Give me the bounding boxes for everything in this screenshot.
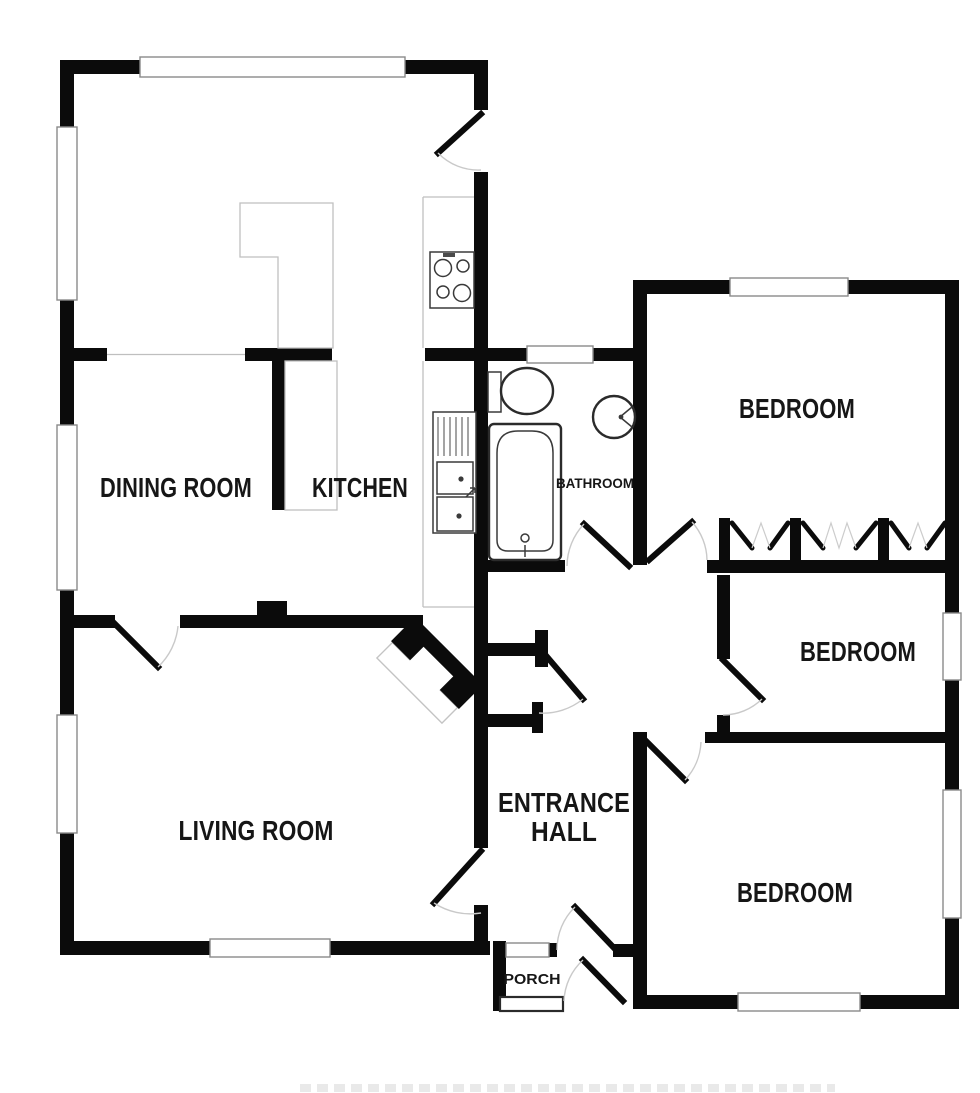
label-kitchen: KITCHEN (312, 472, 408, 503)
label-bathroom: BATHROOM (556, 475, 634, 491)
room-bathroom (488, 361, 633, 560)
room-entrance-hall (488, 572, 633, 941)
window-icon (738, 993, 860, 1011)
floorplan-canvas: DINING ROOM KITCHEN LIVING ROOM BATHROOM… (0, 0, 980, 1093)
label-hall: HALL (531, 816, 597, 847)
room-bedroom-1 (647, 294, 945, 560)
label-bedroom-2: BEDROOM (800, 636, 916, 667)
label-bedroom-1: BEDROOM (739, 393, 855, 424)
label-bedroom-3: BEDROOM (737, 877, 853, 908)
label-entrance: ENTRANCE (498, 787, 630, 818)
window-icon (730, 278, 848, 296)
porch-opening (506, 943, 549, 957)
label-porch: PORCH (504, 971, 561, 988)
room-kitchen-area (74, 74, 474, 348)
window-icon (943, 790, 961, 918)
window-icon (210, 939, 330, 957)
porch-front-door (500, 997, 563, 1011)
label-dining-room: DINING ROOM (100, 472, 252, 503)
room-living (74, 628, 474, 941)
window-icon (943, 613, 961, 680)
label-living-room: LIVING ROOM (179, 815, 334, 846)
room-bedroom-3 (647, 743, 945, 995)
floorplan-drawing: DINING ROOM KITCHEN LIVING ROOM BATHROOM… (0, 0, 980, 1093)
window-icon (527, 346, 593, 363)
